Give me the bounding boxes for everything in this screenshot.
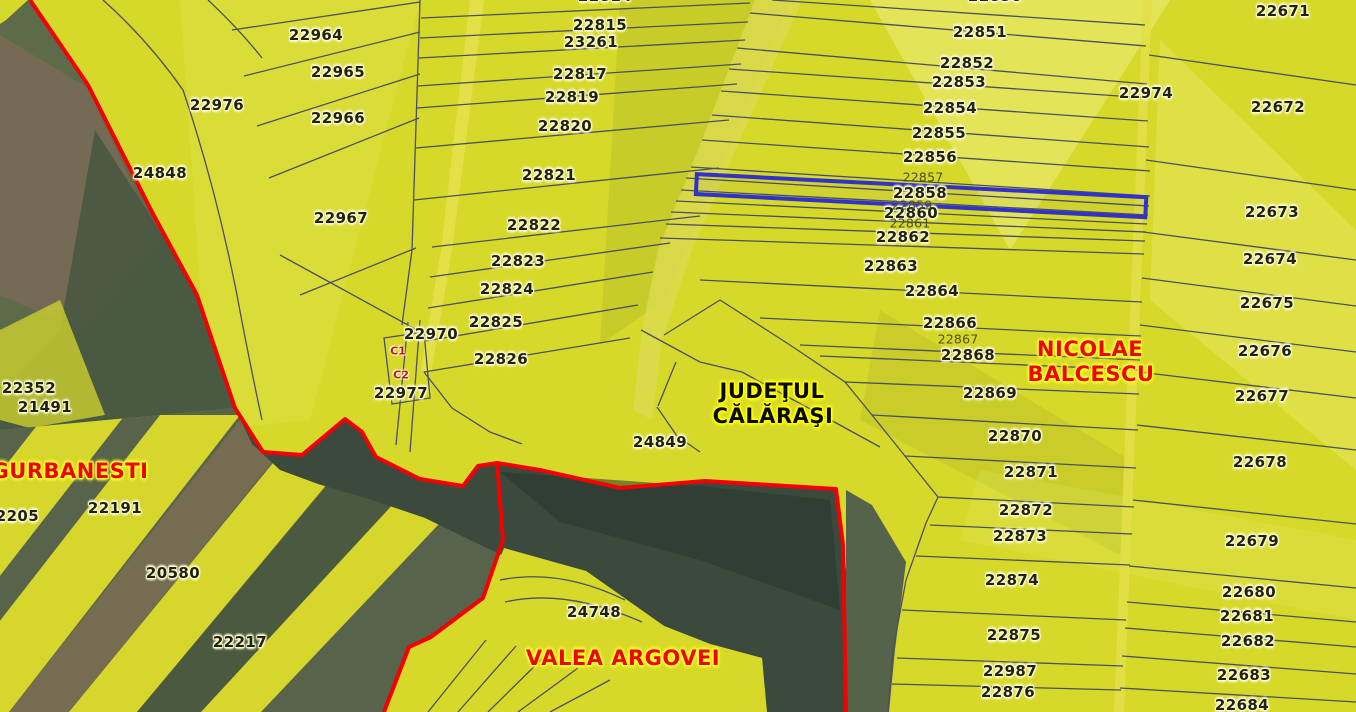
map-canvas[interactable]: 2296422965229662296722976248482235221491… — [0, 0, 1356, 712]
map-terrain — [0, 0, 1356, 712]
